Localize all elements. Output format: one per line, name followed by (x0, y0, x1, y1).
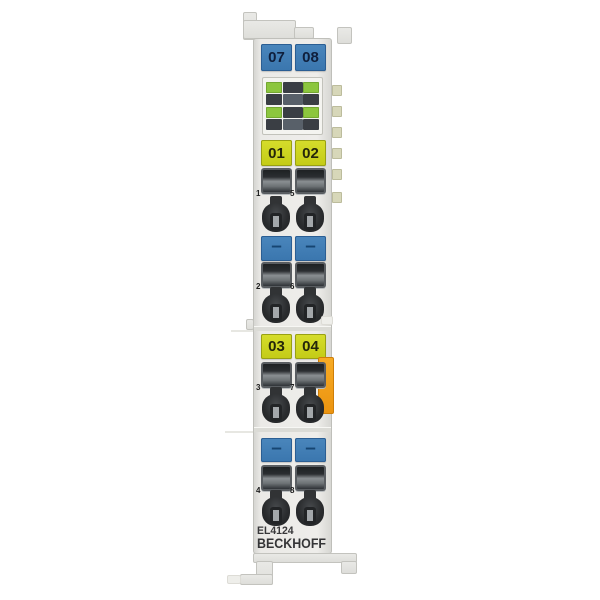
lever-slot (304, 213, 316, 230)
label-minus-3: – (261, 438, 292, 462)
terminal-contact-slot (263, 264, 290, 286)
release-lever-2 (261, 287, 291, 324)
seam-notch-left (246, 319, 254, 330)
label-01: 01 (261, 140, 292, 166)
label-07: 07 (261, 44, 292, 71)
seam-notch-right (321, 316, 333, 325)
terminal-contact-slot (297, 264, 324, 286)
led (283, 82, 303, 93)
release-lever-4 (261, 490, 291, 526)
housing-seam (254, 427, 331, 432)
terminal-opening-6 (295, 262, 326, 288)
terminal-opening-4 (261, 465, 292, 491)
lever-slot (304, 304, 316, 321)
label-minus-1: – (261, 236, 292, 261)
terminal-contact-slot (297, 170, 324, 192)
terminal-opening-1 (261, 168, 292, 194)
terminal-contact-slot (297, 364, 324, 386)
led-panel (262, 77, 323, 135)
led (266, 107, 282, 118)
led (283, 119, 303, 130)
led (303, 119, 319, 130)
led (303, 94, 319, 105)
lever-slot (270, 507, 282, 524)
label-04: 04 (295, 334, 326, 359)
label-02: 02 (295, 140, 326, 166)
product-photo: 07 08 01 02 1 5 – – (0, 0, 600, 600)
bottom-foot-left-arm (240, 574, 273, 585)
release-lever-5 (295, 196, 325, 233)
led (266, 94, 282, 105)
side-contact-tab (332, 148, 342, 159)
terminal-contact-slot (263, 170, 290, 192)
led-row (266, 94, 319, 105)
led-row (266, 82, 319, 93)
terminal-number-2: 2 (256, 283, 260, 291)
led (283, 107, 303, 118)
side-contact-tab (332, 106, 342, 117)
lever-slot (304, 404, 316, 421)
terminal-opening-8 (295, 465, 326, 491)
top-hook-bar (243, 20, 296, 39)
photo-edge-line (225, 431, 253, 433)
lever-slot (304, 507, 316, 524)
release-lever-7 (295, 387, 325, 424)
label-minus-4: – (295, 438, 326, 462)
led (303, 82, 319, 93)
terminal-opening-5 (295, 168, 326, 194)
side-contact-tab (332, 85, 342, 96)
release-lever-1 (261, 196, 291, 233)
photo-edge-line (231, 330, 253, 332)
side-contact-tab (332, 127, 342, 138)
lever-slot (270, 404, 282, 421)
bottom-foot-ghost (227, 575, 241, 584)
led (266, 119, 282, 130)
lever-slot (270, 304, 282, 321)
led (303, 107, 319, 118)
bottom-foot-right-step (341, 561, 357, 574)
brand-logo-text: BECKHOFF (257, 536, 326, 551)
terminal-contact-slot (263, 467, 290, 489)
release-lever-3 (261, 387, 291, 424)
led (266, 82, 282, 93)
terminal-opening-2 (261, 262, 292, 288)
terminal-number-1: 1 (256, 190, 260, 198)
terminal-opening-7 (295, 362, 326, 388)
release-lever-8 (295, 490, 325, 526)
top-neighbor-tab (337, 27, 352, 44)
terminal-opening-3 (261, 362, 292, 388)
terminal-number-3: 3 (256, 384, 260, 392)
side-contact-tab (332, 169, 342, 180)
terminal-contact-slot (263, 364, 290, 386)
label-03: 03 (261, 334, 292, 359)
side-contact-tab (332, 192, 342, 203)
housing-seam (254, 326, 331, 331)
led-row (266, 119, 319, 130)
label-minus-2: – (295, 236, 326, 261)
led (283, 94, 303, 105)
label-08: 08 (295, 44, 326, 71)
led-row (266, 107, 319, 118)
lever-slot (270, 213, 282, 230)
terminal-number-4: 4 (256, 487, 260, 495)
terminal-contact-slot (297, 467, 324, 489)
